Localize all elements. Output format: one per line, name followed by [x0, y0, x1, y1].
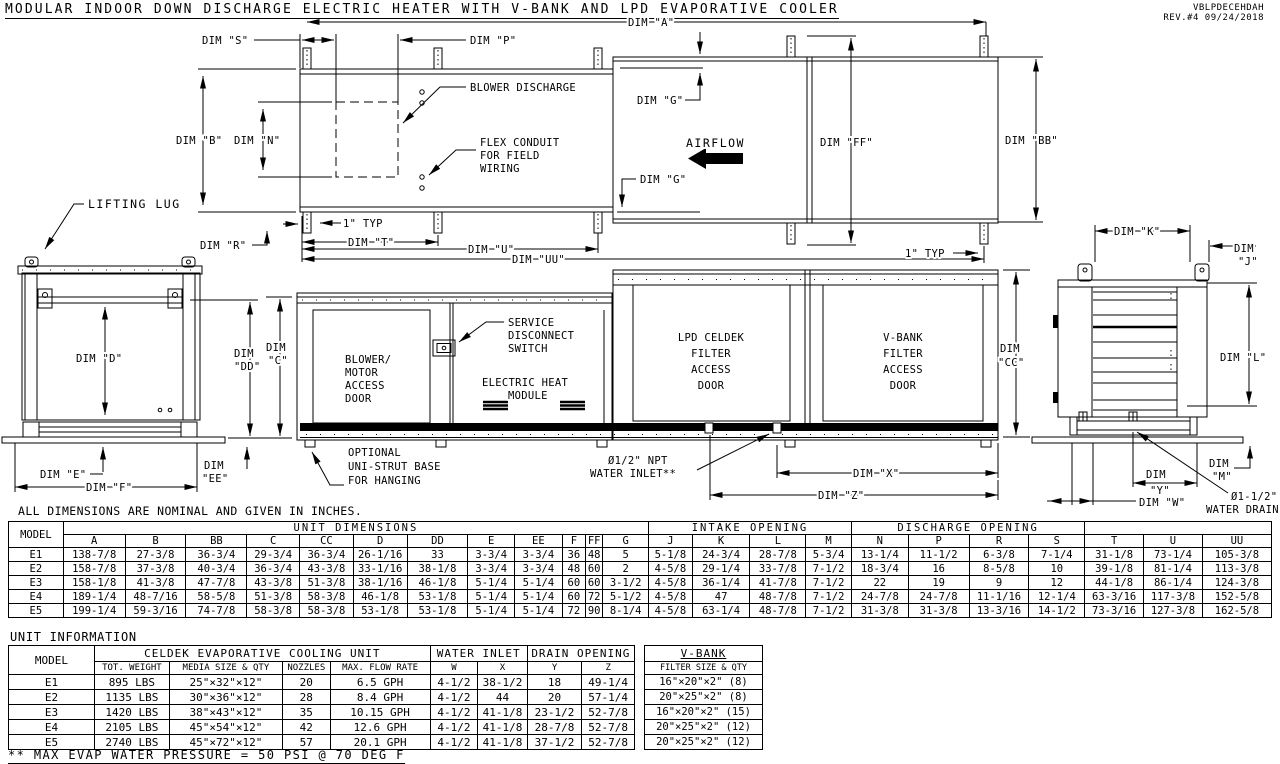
- table-cell: 30"×36"×12": [169, 690, 282, 705]
- table-cell: 41-1/8: [478, 705, 528, 720]
- column-header: C: [247, 535, 300, 548]
- table-cell: 58-3/8: [300, 590, 354, 604]
- svg-text:WATER INLET**: WATER INLET**: [590, 468, 676, 480]
- table-cell: 9: [969, 576, 1029, 590]
- column-header: K: [692, 535, 750, 548]
- svg-text:"C": "C": [268, 355, 288, 367]
- column-header-row: ABBBCCCDDDEEEFFFGJKLMNPRSTUUU: [9, 535, 1272, 548]
- table-cell: 13-3/16: [969, 604, 1029, 618]
- water-inlet-label: Ø1/2" NPT: [608, 455, 668, 467]
- table-cell: 60: [562, 576, 585, 590]
- table-cell: E1: [9, 675, 95, 690]
- group-header: CELDEK EVAPORATIVE COOLING UNIT: [94, 646, 430, 662]
- table-cell: 4-1/2: [430, 705, 478, 720]
- column-header: W: [430, 662, 478, 675]
- dim-f-label: DIM "F": [86, 482, 132, 494]
- table-cell: 59-3/16: [125, 604, 186, 618]
- table-cell: 41-3/8: [125, 576, 186, 590]
- table-cell: 31-3/8: [908, 604, 969, 618]
- table-cell: 13-1/4: [851, 548, 908, 562]
- table-cell: 41-1/8: [478, 735, 528, 750]
- dim-d-label: DIM "D": [76, 353, 122, 365]
- svg-text:ACCESS: ACCESS: [883, 364, 923, 376]
- column-header: X: [478, 662, 528, 675]
- table-cell: 60: [586, 576, 603, 590]
- dim-dd-label: DIM: [234, 348, 254, 360]
- table-cell: 5: [603, 548, 649, 562]
- filter-bank: [1093, 292, 1177, 410]
- table-cell: 5-1/8: [649, 548, 693, 562]
- table-cell: 26-1/16: [353, 548, 407, 562]
- table-cell: 117-3/8: [1144, 590, 1203, 604]
- table-cell: 3-3/4: [515, 548, 563, 562]
- table-row: E31420 LBS38"×43"×12"3510.15 GPH4-1/241-…: [9, 705, 635, 720]
- table-cell: 45"×54"×12": [169, 720, 282, 735]
- unit-dimensions-table: MODEL UNIT DIMENSIONS INTAKE OPENING DIS…: [8, 521, 1272, 618]
- unistrut-feet: [305, 440, 991, 447]
- table-cell: 152-5/8: [1202, 590, 1271, 604]
- table-cell: 74-7/8: [186, 604, 247, 618]
- column-header: MODEL: [9, 646, 95, 675]
- table-cell: 28-7/8: [527, 720, 582, 735]
- dim-e-label: DIM "E": [40, 469, 86, 481]
- svg-text:"EE": "EE": [202, 473, 229, 485]
- table-cell: 58-3/8: [300, 604, 354, 618]
- dim-n-label: DIM "N": [234, 135, 280, 147]
- table-cell: 31-3/8: [851, 604, 908, 618]
- column-header: EE: [515, 535, 563, 548]
- column-header: DD: [407, 535, 468, 548]
- drawing-canvas: DIM "S" DIM "P" DIM "A" DIM "B" DIM "N" …: [0, 0, 1280, 520]
- table-cell: 38-1/8: [407, 562, 468, 576]
- column-header: TOT. WEIGHT: [94, 662, 169, 675]
- table-cell: 48-7/8: [750, 604, 806, 618]
- table-cell: 35: [283, 705, 331, 720]
- table-cell: 3-3/4: [468, 562, 515, 576]
- table-row: 20"×25"×2" (12): [645, 720, 763, 735]
- table-cell: 1420 LBS: [94, 705, 169, 720]
- table-cell: 41-7/8: [750, 576, 806, 590]
- column-header: J: [649, 535, 693, 548]
- table-cell: 124-3/8: [1202, 576, 1271, 590]
- svg-text:FILTER: FILTER: [691, 348, 731, 360]
- table-row: E3158-1/841-3/847-7/843-3/851-3/838-1/16…: [9, 576, 1272, 590]
- table-row: E21135 LBS30"×36"×12"288.4 GPH4-1/244205…: [9, 690, 635, 705]
- column-header: MEDIA SIZE & QTY: [169, 662, 282, 675]
- svg-text:"DD": "DD": [234, 361, 261, 373]
- service-switch-label: SERVICE: [508, 317, 554, 329]
- table-cell: 36-3/4: [186, 548, 247, 562]
- column-header: P: [908, 535, 969, 548]
- column-header: G: [603, 535, 649, 548]
- svg-text:FOR HANGING: FOR HANGING: [348, 475, 421, 487]
- table-cell: 29-3/4: [247, 548, 300, 562]
- table-cell: 81-1/4: [1144, 562, 1203, 576]
- table-cell: 2: [603, 562, 649, 576]
- unistrut-label: OPTIONAL: [348, 447, 401, 459]
- table-row: 20"×25"×2" (8): [645, 690, 763, 705]
- table-cell: 11-1/16: [969, 590, 1029, 604]
- table-cell: 5-1/4: [515, 604, 563, 618]
- table-cell: 48-7/16: [125, 590, 186, 604]
- table-cell: 49-1/4: [582, 675, 635, 690]
- group-header: DISCHARGE OPENING: [851, 522, 1084, 535]
- svg-text:DOOR: DOOR: [890, 380, 917, 392]
- table-cell: 33: [407, 548, 468, 562]
- column-header: T: [1085, 535, 1144, 548]
- table-cell: 895 LBS: [94, 675, 169, 690]
- svg-text:"J": "J": [1238, 256, 1258, 268]
- dim-cc-label: DIM: [1000, 343, 1020, 355]
- unit-information-body: E1895 LBS25"×32"×12"206.5 GPH4-1/238-1/2…: [9, 675, 635, 750]
- svg-text:FILTER: FILTER: [883, 348, 923, 360]
- svg-text:DISCONNECT: DISCONNECT: [508, 330, 575, 342]
- table-cell: 16: [908, 562, 969, 576]
- column-header: D: [353, 535, 407, 548]
- table-cell: 58-3/8: [247, 604, 300, 618]
- column-header: FF: [586, 535, 603, 548]
- table-cell: 8-5/8: [969, 562, 1029, 576]
- table-row: E1138-7/827-3/836-3/429-3/436-3/426-1/16…: [9, 548, 1272, 562]
- table-cell: 19: [908, 576, 969, 590]
- table-cell: 5-1/4: [468, 604, 515, 618]
- table-cell: 25"×32"×12": [169, 675, 282, 690]
- lifting-lug-label: LIFTING LUG: [88, 197, 181, 211]
- table-cell: 53-1/8: [353, 604, 407, 618]
- table-cell: 5-1/4: [468, 590, 515, 604]
- table-cell: 52-7/8: [582, 735, 635, 750]
- dim-m-label: DIM: [1209, 458, 1229, 470]
- table-cell: 20: [283, 675, 331, 690]
- svg-text:"CC": "CC": [998, 357, 1025, 369]
- group-header: V-BANK: [645, 646, 763, 662]
- table-cell: 158-1/8: [63, 576, 125, 590]
- table-cell: 4-5/8: [649, 604, 693, 618]
- left-end-view: DIM "D" DIM "DD" DIM "C" DIM "E" DIM "F"…: [2, 257, 292, 494]
- table-cell: 10.15 GPH: [330, 705, 430, 720]
- table-cell: 90: [586, 604, 603, 618]
- table-cell: 4-5/8: [649, 590, 693, 604]
- table-cell: 16"×20"×2" (8): [645, 675, 763, 690]
- table-cell: E2: [9, 562, 64, 576]
- column-header: F: [562, 535, 585, 548]
- table-cell: 38"×43"×12": [169, 705, 282, 720]
- column-header: Y: [527, 662, 582, 675]
- table-cell: 113-3/8: [1202, 562, 1271, 576]
- table-row: 16"×20"×2" (15): [645, 705, 763, 720]
- water-inlet-fitting: [705, 423, 713, 433]
- dim-uu-label: DIM "UU": [512, 254, 565, 266]
- vbank-body: 16"×20"×2" (8)20"×25"×2" (8)16"×20"×2" (…: [645, 675, 763, 750]
- table-cell: 5-1/4: [468, 576, 515, 590]
- table-cell: E1: [9, 548, 64, 562]
- table-cell: 39-1/8: [1085, 562, 1144, 576]
- dim-w-label: DIM "W": [1139, 497, 1185, 509]
- table-cell: 60: [586, 562, 603, 576]
- table-cell: 86-1/4: [1144, 576, 1203, 590]
- table-cell: 12: [1029, 576, 1085, 590]
- column-header: B: [125, 535, 186, 548]
- svg-text:"Y": "Y": [1150, 485, 1170, 497]
- table-cell: 24-3/4: [692, 548, 750, 562]
- svg-text:"M": "M": [1212, 471, 1232, 483]
- dim-k-label: DIM "K": [1114, 226, 1160, 238]
- table-cell: 52-7/8: [582, 705, 635, 720]
- heat-module-louvers: [483, 402, 585, 409]
- table-cell: 37-1/2: [527, 735, 582, 750]
- table-cell: 44-1/8: [1085, 576, 1144, 590]
- dim-y-label: DIM: [1146, 469, 1166, 481]
- table-cell: 5-1/4: [515, 576, 563, 590]
- svg-text:FOR FIELD: FOR FIELD: [480, 150, 540, 162]
- table-cell: 6-3/8: [969, 548, 1029, 562]
- airflow-arrow-icon: [688, 148, 743, 169]
- table-cell: 36-3/4: [247, 562, 300, 576]
- dim-j-label: DIM: [1234, 243, 1254, 255]
- table-cell: 51-3/8: [300, 576, 354, 590]
- blower-discharge-label: BLOWER DISCHARGE: [470, 82, 576, 94]
- table-cell: 37-3/8: [125, 562, 186, 576]
- table-cell: 4-1/2: [430, 690, 478, 705]
- table-cell: 4-1/2: [430, 735, 478, 750]
- water-drain-label: Ø1-1/2": [1231, 491, 1277, 503]
- table-row: E4189-1/448-7/1658-5/851-3/858-3/846-1/8…: [9, 590, 1272, 604]
- table-cell: 33-1/16: [353, 562, 407, 576]
- mounting-tabs: [303, 36, 988, 244]
- table-cell: 72: [562, 604, 585, 618]
- table-row: 16"×20"×2" (8): [645, 675, 763, 690]
- table-cell: 60: [562, 590, 585, 604]
- dim-ee-label: DIM: [204, 460, 224, 472]
- dim-x-label: DIM "X": [853, 468, 899, 480]
- dim-l-label: DIM "L": [1220, 352, 1266, 364]
- column-header: FILTER SIZE & QTY: [645, 662, 763, 675]
- table-cell: 127-3/8: [1144, 604, 1203, 618]
- right-end-view: DIM "K" DIM "J" DIM "L" DIM "M" DIM "Y" …: [1032, 225, 1279, 516]
- table-cell: 14-1/2: [1029, 604, 1085, 618]
- svg-text:WATER DRAIN: WATER DRAIN: [1206, 504, 1279, 516]
- table-row: 20"×25"×2" (12): [645, 735, 763, 750]
- table-cell: E4: [9, 590, 64, 604]
- svg-text:SWITCH: SWITCH: [508, 343, 548, 355]
- column-header: Z: [582, 662, 635, 675]
- column-header: S: [1029, 535, 1085, 548]
- group-header: [1085, 522, 1272, 535]
- table-cell: 48: [562, 562, 585, 576]
- table-cell: 52-7/8: [582, 720, 635, 735]
- footnote: ** MAX EVAP WATER PRESSURE = 50 PSI @ 70…: [8, 748, 405, 764]
- unit-dimensions-body: E1138-7/827-3/836-3/429-3/436-3/426-1/16…: [9, 548, 1272, 618]
- elevation-view: BLOWER/ MOTOR ACCESS DOOR SERVICE DISCON…: [297, 270, 1030, 502]
- table-cell: 20"×25"×2" (12): [645, 735, 763, 750]
- dim-c-label: DIM: [266, 342, 286, 354]
- table-cell: 53-1/8: [407, 604, 468, 618]
- dim-p-label: DIM "P": [470, 35, 516, 47]
- table-cell: 41-1/8: [478, 720, 528, 735]
- table-cell: 28-7/8: [750, 548, 806, 562]
- blower-door-label: BLOWER/: [345, 354, 391, 366]
- table-cell: 51-3/8: [247, 590, 300, 604]
- table-cell: 48-7/8: [750, 590, 806, 604]
- dim-g-lower-label: DIM "G": [640, 174, 686, 186]
- unit-information-title: UNIT INFORMATION: [10, 630, 137, 644]
- table-cell: 10: [1029, 562, 1085, 576]
- table-cell: 27-3/8: [125, 548, 186, 562]
- group-header: WATER INLET: [430, 646, 527, 662]
- group-header: DRAIN OPENING: [527, 646, 634, 662]
- group-header-row: MODEL UNIT DIMENSIONS INTAKE OPENING DIS…: [9, 522, 1272, 535]
- table-cell: 16"×20"×2" (15): [645, 705, 763, 720]
- service-disconnect-switch: [433, 340, 455, 356]
- table-row: E5199-1/459-3/1674-7/858-3/858-3/853-1/8…: [9, 604, 1272, 618]
- dim-bb-label: DIM "BB": [1005, 135, 1058, 147]
- table-cell: 7-1/2: [806, 562, 852, 576]
- column-header: CC: [300, 535, 354, 548]
- water-inlet-fitting: [773, 423, 781, 433]
- table-cell: 189-1/4: [63, 590, 125, 604]
- table-cell: 1135 LBS: [94, 690, 169, 705]
- table-cell: 4-5/8: [649, 562, 693, 576]
- table-cell: E3: [9, 576, 64, 590]
- table-cell: 63-1/4: [692, 604, 750, 618]
- table-cell: 53-1/8: [407, 590, 468, 604]
- table-row: E42105 LBS45"×54"×12"4212.6 GPH4-1/241-1…: [9, 720, 635, 735]
- lpd-door-label: LPD CELDEK: [678, 332, 745, 344]
- table-cell: 138-7/8: [63, 548, 125, 562]
- unit-information-table: MODEL CELDEK EVAPORATIVE COOLING UNIT WA…: [8, 645, 635, 750]
- table-cell: 36: [562, 548, 585, 562]
- dim-s-label: DIM "S": [202, 35, 248, 47]
- table-cell: 7-1/2: [806, 590, 852, 604]
- table-cell: 46-1/8: [407, 576, 468, 590]
- plan-view: DIM "S" DIM "P" DIM "A" DIM "B" DIM "N" …: [45, 17, 1058, 266]
- column-header-row: TOT. WEIGHTMEDIA SIZE & QTYNOZZLESMAX. F…: [9, 662, 635, 675]
- table-cell: 29-1/4: [692, 562, 750, 576]
- table-cell: 199-1/4: [63, 604, 125, 618]
- table-cell: 23-1/2: [527, 705, 582, 720]
- svg-text:MOTOR: MOTOR: [345, 367, 378, 379]
- table-cell: 20"×25"×2" (8): [645, 690, 763, 705]
- dim-r-label: DIM "R": [200, 240, 246, 252]
- svg-text:WIRING: WIRING: [480, 163, 520, 175]
- table-cell: 162-5/8: [1202, 604, 1271, 618]
- column-header: BB: [186, 535, 247, 548]
- table-cell: 47: [692, 590, 750, 604]
- svg-text:MODULE: MODULE: [508, 390, 548, 402]
- group-header: UNIT DIMENSIONS: [63, 522, 648, 535]
- column-header: MODEL: [9, 522, 64, 548]
- table-cell: 158-7/8: [63, 562, 125, 576]
- table-cell: 2105 LBS: [94, 720, 169, 735]
- table-cell: 42: [283, 720, 331, 735]
- table-cell: 33-7/8: [750, 562, 806, 576]
- column-header: N: [851, 535, 908, 548]
- table-cell: 43-3/8: [300, 562, 354, 576]
- svg-text:ACCESS: ACCESS: [691, 364, 731, 376]
- table-cell: 57-1/4: [582, 690, 635, 705]
- table-cell: 4-1/2: [430, 675, 478, 690]
- column-header: R: [969, 535, 1029, 548]
- column-header: E: [468, 535, 515, 548]
- table-cell: 8-1/4: [603, 604, 649, 618]
- table-cell: 5-3/4: [806, 548, 852, 562]
- table-cell: 73-1/4: [1144, 548, 1203, 562]
- table-cell: 7-1/2: [806, 576, 852, 590]
- table-cell: 43-3/8: [247, 576, 300, 590]
- group-header: INTAKE OPENING: [649, 522, 852, 535]
- table-cell: 105-3/8: [1202, 548, 1271, 562]
- table-cell: 40-3/4: [186, 562, 247, 576]
- dim-ff-label: DIM "FF": [820, 137, 873, 149]
- table-cell: 73-3/16: [1085, 604, 1144, 618]
- table-cell: 24-7/8: [908, 590, 969, 604]
- svg-text:UNI-STRUT BASE: UNI-STRUT BASE: [348, 461, 441, 473]
- column-header: L: [750, 535, 806, 548]
- table-cell: 36-3/4: [300, 548, 354, 562]
- table-cell: 4-1/2: [430, 720, 478, 735]
- svg-text:ACCESS: ACCESS: [345, 380, 385, 392]
- table-cell: 24-7/8: [851, 590, 908, 604]
- table-cell: 12-1/4: [1029, 590, 1085, 604]
- table-cell: 47-7/8: [186, 576, 247, 590]
- table-cell: 3-3/4: [468, 548, 515, 562]
- table-cell: 58-5/8: [186, 590, 247, 604]
- engineering-drawing-page: { "header": { "title": "MODULAR INDOOR D…: [0, 0, 1280, 761]
- typ-label-left: 1" TYP: [343, 218, 383, 230]
- blower-discharge-opening: [336, 102, 398, 177]
- table-cell: E3: [9, 705, 95, 720]
- table-cell: 3-1/2: [603, 576, 649, 590]
- dim-t-label: DIM "T": [348, 237, 394, 249]
- group-header-row: V-BANK: [645, 646, 763, 662]
- electric-heat-label: ELECTRIC HEAT: [482, 377, 568, 389]
- column-header: MAX. FLOW RATE: [330, 662, 430, 675]
- table-cell: 38-1/16: [353, 576, 407, 590]
- table-cell: 48: [586, 548, 603, 562]
- table-cell: 11-1/2: [908, 548, 969, 562]
- dim-a-label: DIM "A": [628, 17, 674, 29]
- column-header: UU: [1202, 535, 1271, 548]
- table-cell: 20: [527, 690, 582, 705]
- table-row: E1895 LBS25"×32"×12"206.5 GPH4-1/238-1/2…: [9, 675, 635, 690]
- dim-z-label: DIM "Z": [818, 490, 864, 502]
- column-header: NOZZLES: [283, 662, 331, 675]
- svg-text:DOOR: DOOR: [345, 393, 372, 405]
- table-cell: E2: [9, 690, 95, 705]
- flex-conduit-label: FLEX CONDUIT: [480, 137, 560, 149]
- table-cell: 7-1/2: [806, 604, 852, 618]
- table-cell: 36-1/4: [692, 576, 750, 590]
- table-cell: 72: [586, 590, 603, 604]
- table-cell: E4: [9, 720, 95, 735]
- table-cell: 18-3/4: [851, 562, 908, 576]
- dim-b-label: DIM "B": [176, 135, 222, 147]
- table-cell: 6.5 GPH: [330, 675, 430, 690]
- typ-label-right: 1" TYP: [905, 248, 945, 260]
- group-header-row: MODEL CELDEK EVAPORATIVE COOLING UNIT WA…: [9, 646, 635, 662]
- table-cell: 20"×25"×2" (12): [645, 720, 763, 735]
- airflow-label: AIRFLOW: [686, 136, 745, 150]
- dim-g-upper-label: DIM "G": [637, 95, 683, 107]
- table-cell: 22: [851, 576, 908, 590]
- column-header: M: [806, 535, 852, 548]
- table-cell: 5-1/2: [603, 590, 649, 604]
- column-header-row: FILTER SIZE & QTY: [645, 662, 763, 675]
- table-cell: 5-1/4: [515, 590, 563, 604]
- table-cell: 18: [527, 675, 582, 690]
- table-cell: 31-1/8: [1085, 548, 1144, 562]
- table-cell: 28: [283, 690, 331, 705]
